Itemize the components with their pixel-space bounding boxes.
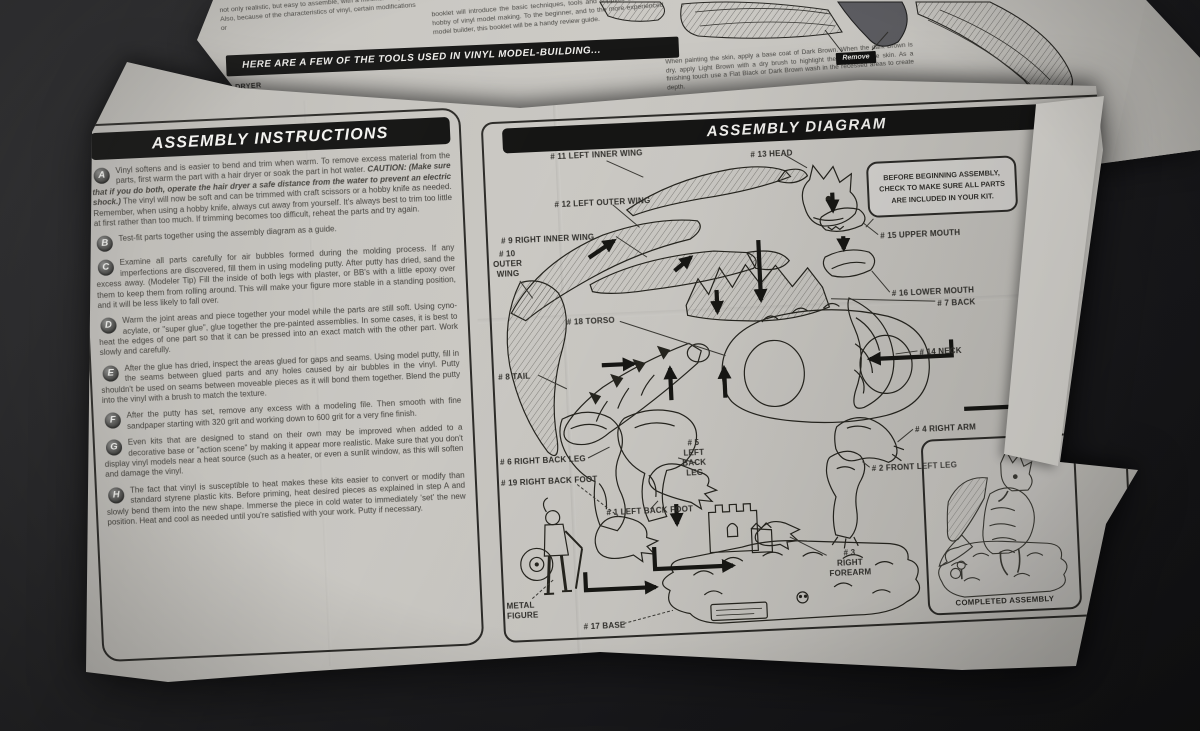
completed-assembly-label: COMPLETED ASSEMBLY [930,593,1080,609]
step-letter-badge: D [100,318,117,335]
step-a: A Vinyl softens and is easier to bend an… [91,151,452,230]
step-letter-badge: E [102,365,119,382]
label-part-8: # 8 TAIL [498,372,531,383]
step-h: H The fact that vinyl is susceptible to … [106,470,467,528]
step-letter-badge: B [96,236,113,253]
photo-of-instruction-sheet: not only realistic, but easy to assemble… [0,0,1200,731]
label-part-7: # 7 BACK [937,297,975,309]
completed-assembly-box: COMPLETED ASSEMBLY [921,433,1083,616]
step-c: C Examine all parts carefully for air bu… [95,243,456,311]
step-letter-badge: F [104,413,121,430]
step-letter-badge: G [106,439,123,456]
step-h-text: The fact that vinyl is susceptible to he… [107,470,466,526]
label-part-3: # 3 RIGHT FOREARM [828,547,871,579]
label-part-14: # 14 NECK [919,346,962,358]
step-c-text: Examine all parts carefully for air bubb… [96,243,456,310]
label-part-10: # 10 OUTER WING [492,249,522,280]
kit-check-note: BEFORE BEGINNING ASSEMBLY, CHECK TO MAKE… [866,155,1018,218]
step-letter-badge: C [98,260,115,277]
main-sheet: ASSEMBLY INSTRUCTIONS A Vinyl softens an… [0,0,1200,731]
step-d-text: Warm the joint areas and piece together … [99,301,458,357]
step-g-text: Even kits that are designed to stand on … [105,423,464,479]
step-b-text: Test-fit parts together using the assemb… [118,225,337,244]
main-sheet-shadow: ASSEMBLY INSTRUCTIONS A Vinyl softens an… [0,0,1200,731]
assembly-diagram-panel: ASSEMBLY DIAGRAM BEFORE BEGINNING ASSEMB… [481,94,1135,643]
label-part-5: # 5 LEFT BACK LEG [681,438,707,479]
step-letter-badge: H [108,487,125,504]
assembly-instructions-panel: ASSEMBLY INSTRUCTIONS A Vinyl softens an… [78,107,484,662]
main-sheet-content: ASSEMBLY INSTRUCTIONS A Vinyl softens an… [48,60,1200,677]
label-part-13: # 13 HEAD [750,148,793,160]
label-part-17: # 17 BASE [583,620,625,632]
label-metal-figure: METAL FIGURE [506,600,538,621]
step-e-text: After the glue has dried, inspect the ar… [101,349,460,405]
step-letter-badge: A [93,167,110,184]
instruction-steps: A Vinyl softens and is easier to bend an… [82,145,476,528]
